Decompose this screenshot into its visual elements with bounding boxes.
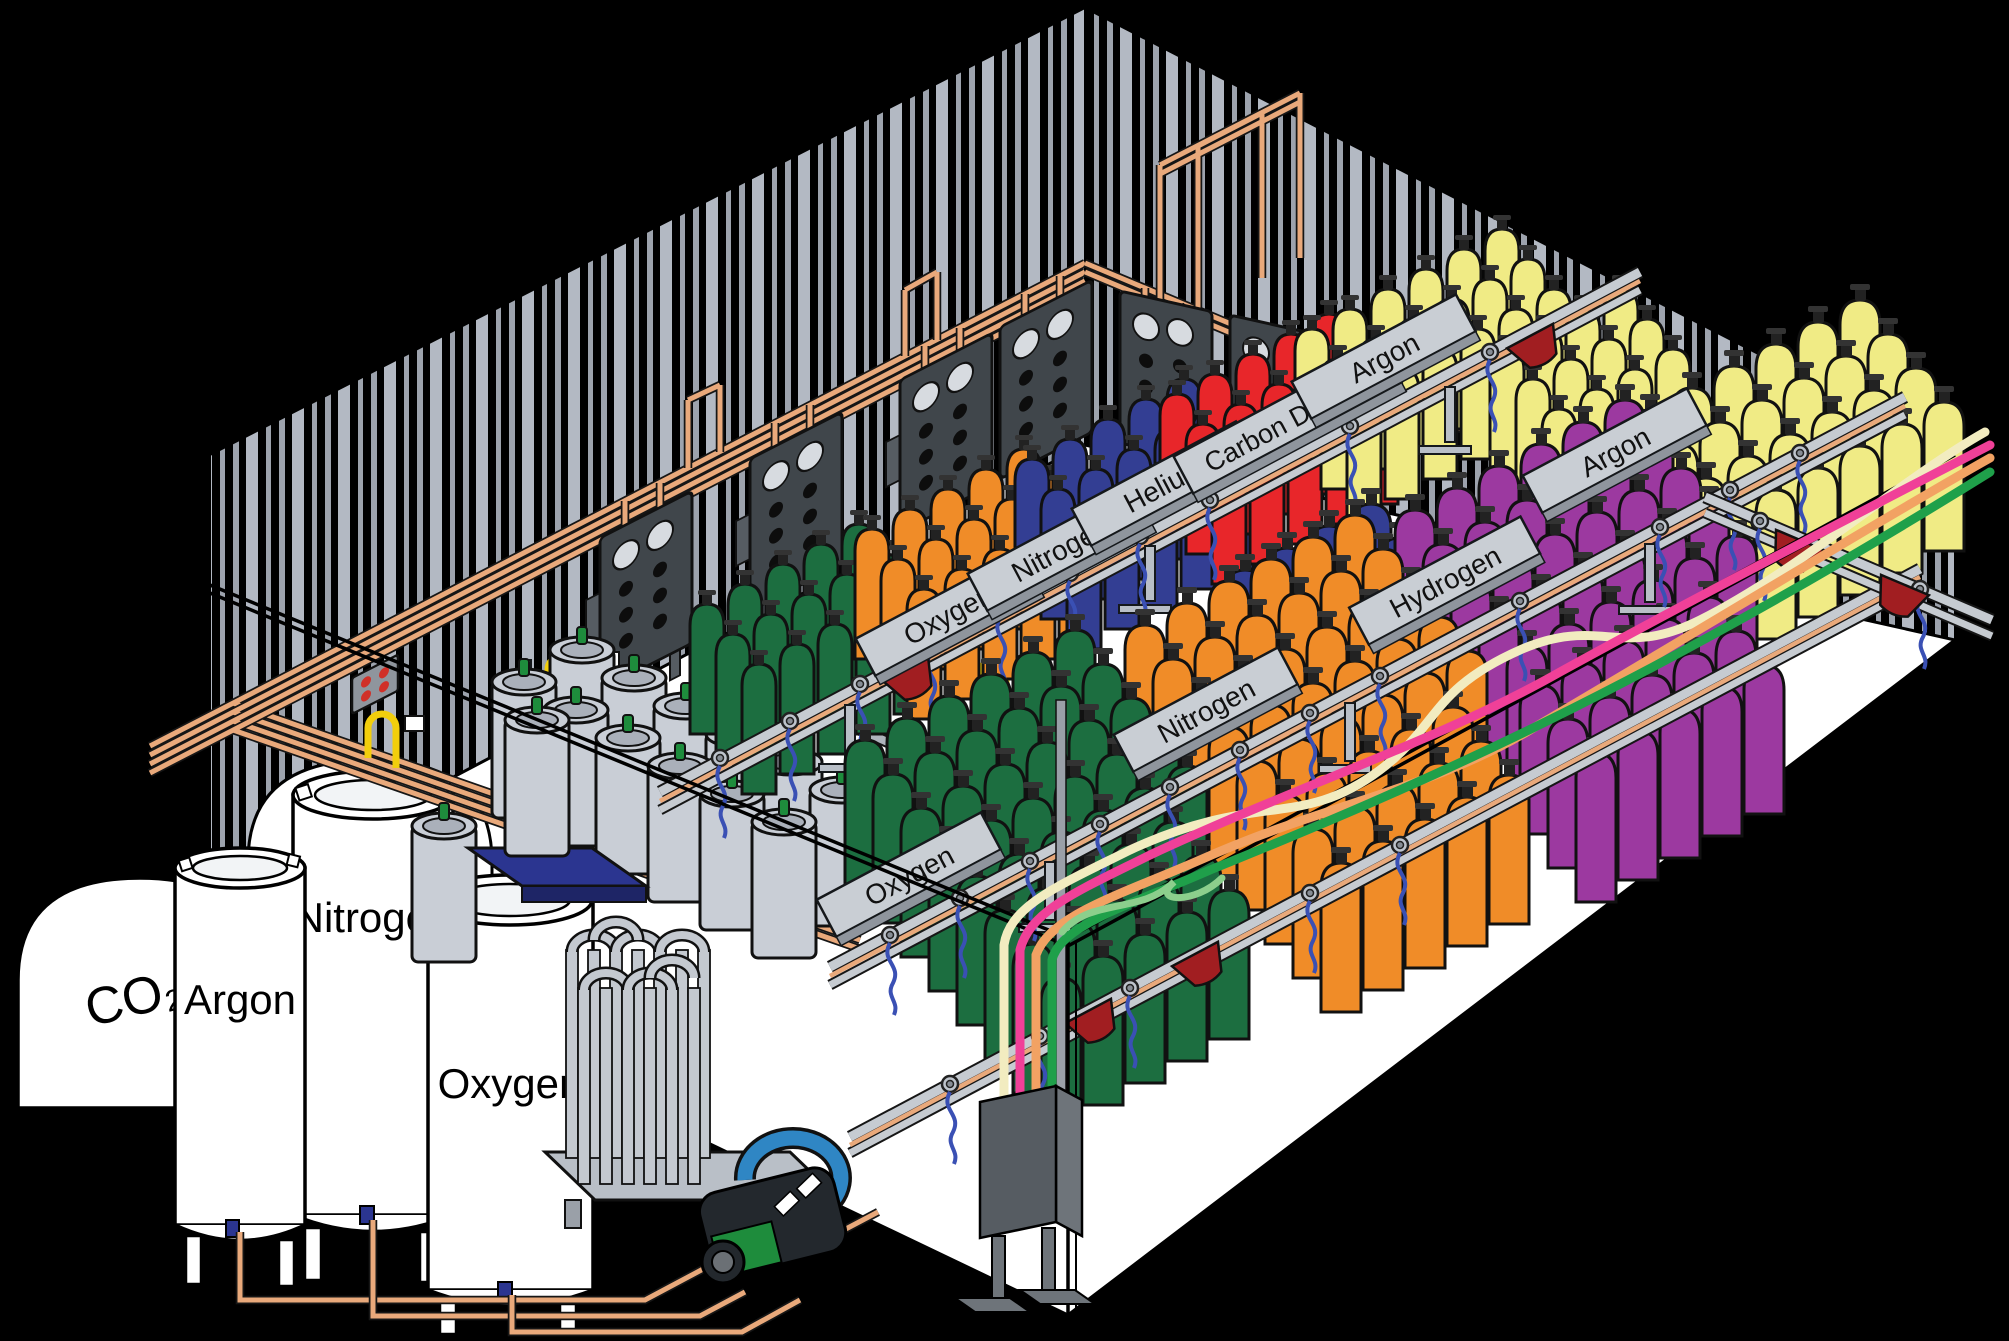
oxygen-tank-label: Oxygen [438,1060,583,1107]
vaporizer-tubes [566,922,710,1184]
argon-tank: Argon [175,848,305,1286]
plant-diagram: CO₂ Nitrogen Argon Oxygen [0,0,2009,1341]
tag-card [405,716,424,731]
argon-tank-label: Argon [184,976,296,1023]
plant-scene: CO₂ Nitrogen Argon Oxygen [0,0,2009,1341]
